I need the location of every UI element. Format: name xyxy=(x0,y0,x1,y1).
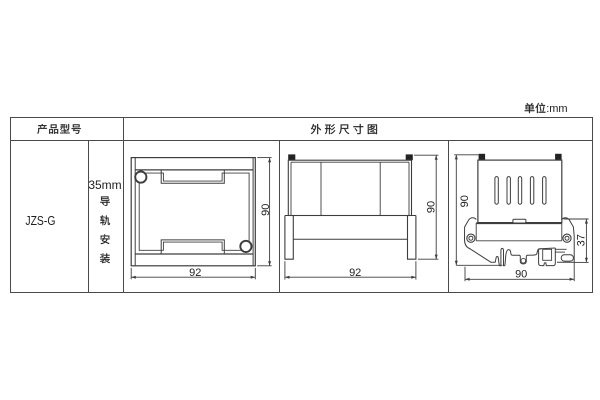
svg-text:90: 90 xyxy=(425,201,437,213)
svg-text:JZS-G: JZS-G xyxy=(25,214,55,228)
svg-text:37: 37 xyxy=(576,234,588,246)
svg-text:35mm: 35mm xyxy=(88,178,121,192)
svg-text:90: 90 xyxy=(260,204,272,216)
svg-text:90: 90 xyxy=(515,268,527,280)
svg-text::mm: :mm xyxy=(546,103,567,115)
svg-text:90: 90 xyxy=(459,195,471,207)
